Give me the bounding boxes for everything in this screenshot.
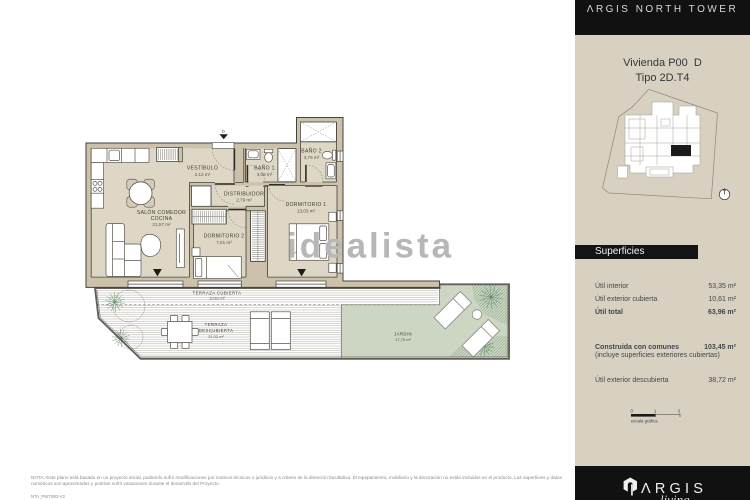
svg-text:3,75 m²: 3,75 m²	[304, 155, 320, 160]
svg-text:2,79 m²: 2,79 m²	[236, 197, 252, 202]
svg-text:TERRAZA: TERRAZA	[205, 322, 228, 327]
svg-text:escala gráfica: escala gráfica	[631, 419, 658, 424]
svg-text:21,02 m²: 21,02 m²	[208, 334, 224, 339]
svg-text:7,01 m²: 7,01 m²	[216, 240, 232, 245]
svg-text:BAÑO 2: BAÑO 2	[301, 148, 321, 155]
svg-text:JARDIN: JARDIN	[394, 332, 412, 337]
svg-text:D: D	[222, 128, 225, 133]
svg-text:2,12 m²: 2,12 m²	[195, 172, 211, 177]
svg-text:living: living	[660, 492, 690, 500]
svg-text:17,70 m²: 17,70 m²	[395, 337, 411, 342]
svg-text:0: 0	[631, 409, 634, 414]
svg-text:DESCUBIERTA: DESCUBIERTA	[199, 328, 234, 333]
svg-text:3: 3	[678, 409, 681, 414]
svg-text:TERRAZA CUBIERTA: TERRAZA CUBIERTA	[193, 290, 242, 295]
svg-text:13,03 m²: 13,03 m²	[297, 209, 316, 214]
svg-text:10,61 m²: 10,61 m²	[209, 296, 225, 301]
svg-text:3,08 m²: 3,08 m²	[257, 172, 273, 177]
svg-text:DORMITORIO 2: DORMITORIO 2	[204, 233, 245, 239]
svg-text:BAÑO 1: BAÑO 1	[254, 165, 274, 172]
svg-text:COCINA: COCINA	[151, 216, 173, 222]
svg-text:VESTÍBULO: VESTÍBULO	[187, 165, 218, 172]
svg-text:1: 1	[654, 409, 657, 414]
svg-text:21,57 m²: 21,57 m²	[152, 222, 171, 227]
svg-text:DORMITORIO 1: DORMITORIO 1	[286, 202, 327, 208]
svg-text:SALÓN COMEDOR: SALÓN COMEDOR	[137, 209, 186, 216]
svg-text:idealista: idealista	[287, 227, 454, 266]
